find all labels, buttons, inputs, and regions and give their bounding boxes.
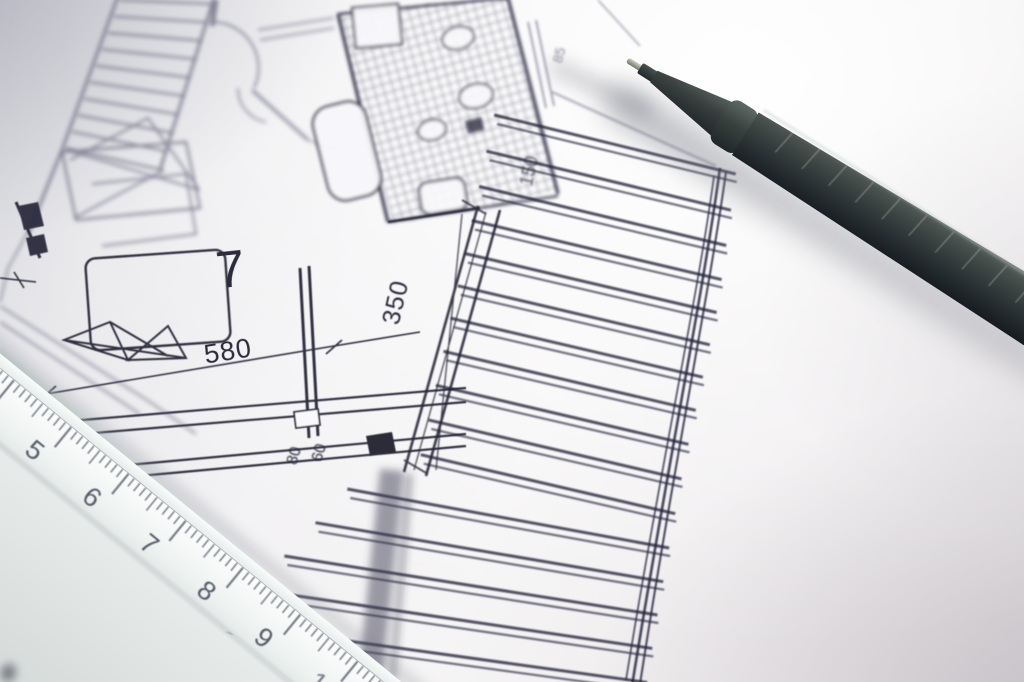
bed-cover-zigzag — [64, 322, 186, 360]
toilet — [457, 80, 496, 112]
washbasin — [418, 177, 468, 216]
bathtub — [309, 98, 385, 204]
corridor-walls — [0, 18, 338, 302]
bidet — [416, 117, 448, 143]
deck-rail — [626, 168, 726, 682]
ruler-marking — [0, 655, 25, 682]
blueprint-photo: 7 580 350 80 60 150 85 4 5 6 7 8 9 10 — [0, 0, 1024, 682]
wall-350 — [388, 200, 500, 476]
room-number: 7 — [213, 243, 247, 298]
washing-machine — [352, 4, 402, 48]
staircase — [28, 0, 259, 246]
